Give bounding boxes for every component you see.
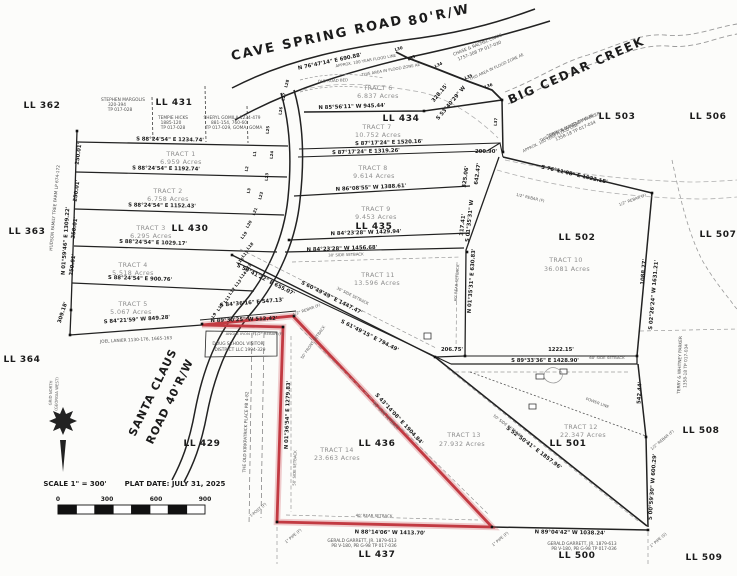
bearing-tract6-south: N 85°56'11" W 945.44' <box>318 103 386 111</box>
line-label-l22: L22 <box>257 191 264 200</box>
owner-garrett-east-2: PB V-180, PB G-98 TP 017-036 <box>551 546 616 552</box>
owner-school-2: DISTRICT LLC 1994-329 <box>214 347 265 353</box>
tract-14-acres: 23.663 Acres <box>314 455 360 462</box>
ll-502: LL 502 <box>559 233 596 243</box>
marker-rebar-4: 1/2" REBAR (F) <box>649 428 675 451</box>
owner-garrett-west-2: PB V-180, PB G-98 TP 017-036 <box>331 543 396 549</box>
line-label-l20: L20 <box>245 219 253 229</box>
tract-11-name: TRACT 11 <box>360 272 395 279</box>
setback-50-t14-west: 50' SIDE SETBACK <box>291 450 297 486</box>
dist-250-01-c: 250.01' <box>71 216 80 239</box>
tract4-tract5-line <box>72 283 254 291</box>
tract-2-name: TRACT 2 <box>152 188 182 195</box>
line-label-l27: L27 <box>280 92 286 101</box>
bearing-n8930: N 89°30'25" W 512.42' <box>210 316 278 324</box>
pond-outline <box>544 368 562 383</box>
tract-7-acres: 10.752 Acres <box>355 132 401 139</box>
owner-gomila-3: TP 017-029, GOMA, GOMA <box>205 125 263 131</box>
dist-328-15: 328.15' <box>431 83 450 104</box>
setback-tract11-top <box>292 257 460 262</box>
big-cedar-creek-name: BIG CEDAR CREEK <box>506 34 647 107</box>
bearing-t5-bottom: S 84°21'59" W 849.28' <box>104 315 171 326</box>
scale-bar <box>58 505 205 514</box>
owner-margolis-3: TP 017-028 <box>107 107 133 113</box>
ll-434: LL 434 <box>383 114 420 124</box>
corridor-206-line <box>435 356 465 357</box>
scale-text: SCALE 1" = 300' <box>43 480 106 488</box>
tract1-tract2-line <box>76 172 287 177</box>
plat-map: CAVE SPRING ROAD80'R/WBIG CEDAR CREEKSAN… <box>0 0 737 576</box>
ll-508: LL 508 <box>683 426 720 436</box>
line-label-l26: L26 <box>277 106 283 115</box>
note-old-road-bed: OLD ROAD BED <box>318 77 348 84</box>
ll-436: LL 436 <box>359 439 396 449</box>
bearing-t4-t5: S 88°24'54" E 900.76' <box>108 275 173 283</box>
setback-40-rear-t14: 40' REAR SETBACK <box>356 513 393 519</box>
ll-437: LL 437 <box>359 550 396 560</box>
note-flood-zone-top: THIS AREA IN FLOOD ZONE AE <box>360 62 421 77</box>
compass-text-2: (GEORGIA WEST) <box>53 377 59 411</box>
tract-1-acres: 6.959 Acres <box>160 159 202 166</box>
bearing-s0059: S 00°59'30" W 600.29' <box>648 453 659 520</box>
scale-tick-0: 0 <box>56 496 60 503</box>
line-label-l34: L34 <box>434 61 444 69</box>
tract-14-name: TRACT 14 <box>319 447 354 454</box>
tract-12-acres: 22.347 Acres <box>560 432 606 439</box>
owner-hudson: HUDSON FAMILY TREE FARM LP 674-172 <box>48 165 61 251</box>
ll-364: LL 364 <box>4 355 41 365</box>
tract-11-acres: 13.596 Acres <box>354 280 400 287</box>
old-kirkpatrick-place-road <box>249 333 264 525</box>
flood-line-right-a <box>505 160 737 182</box>
setback-30-t11-top: 30' SIDE SETBACK <box>328 251 364 257</box>
lot431-divider-2 <box>205 86 206 142</box>
dist-642-47: 642.47' <box>474 162 483 185</box>
dist-250-01-d: 250.01' <box>69 253 78 276</box>
cave-spring-road-rw: 80'R/W <box>407 2 472 30</box>
tract-9-acres: 9.453 Acres <box>355 214 397 221</box>
line-label-l3: L3 <box>246 187 252 193</box>
north-arrow-pointer <box>60 440 66 472</box>
lot431-divider-1 <box>152 97 153 141</box>
tract-8-name: TRACT 8 <box>357 165 387 172</box>
dist-1222-15: 1222.15' <box>548 347 574 353</box>
bearing-tract10-north: S 76°11'08" E 1022.18' <box>540 164 608 185</box>
tract5-south-line <box>70 325 202 335</box>
dist-325-06: 325.06' <box>462 165 471 188</box>
bearing-n0135: N 01°35'31" E 630.83' <box>467 248 478 313</box>
tract-6-name: TRACT 6 <box>362 85 392 92</box>
marker-angle-iron: ANGLE IRON (F) <box>226 331 257 336</box>
line-label-l36: L36 <box>484 82 493 89</box>
map-labels: CAVE SPRING ROAD80'R/WBIG CEDAR CREEKSAN… <box>4 2 737 563</box>
marker-rebar-3: 1/2" REBAR (F) <box>618 192 647 207</box>
ll-509: LL 509 <box>686 553 723 563</box>
line-label-l30: L30 <box>394 45 403 52</box>
scale-tick-900: 900 <box>199 496 212 503</box>
lot431-divider-3 <box>247 106 248 143</box>
dist-206-75: 206.75' <box>441 347 463 353</box>
tract-9-name: TRACT 9 <box>360 206 390 213</box>
note-flood-zone-creek: THIS AREA IN FLOOD ZONE AE <box>468 52 525 82</box>
tract-10-acres: 36.081 Acres <box>544 266 590 273</box>
setback-60-rear-t11: 60' REAR SETBACK <box>453 264 461 302</box>
marker-pipe-2: 1" PIPE (F) <box>491 530 510 547</box>
plat-document: CAVE SPRING ROAD80'R/WBIG CEDAR CREEKSAN… <box>0 0 737 576</box>
tract-12-name: TRACT 12 <box>563 424 598 431</box>
marker-rebar-1: 1/2" REBAR (F) <box>255 331 284 336</box>
line-label-l28: L28 <box>283 79 290 88</box>
dist-250-01-b: 250.01' <box>73 179 82 202</box>
ll-430: LL 430 <box>172 224 209 234</box>
bearing-t1-t2: S 88°24'54" E 1192.74' <box>132 165 200 172</box>
bearing-t1-top: S 88°24'54" E 1234.74' <box>136 136 204 143</box>
plat-date-text: PLAT DATE: JULY 31, 2025 <box>125 480 226 488</box>
line-label-l25: L25 <box>265 125 271 134</box>
ll-362: LL 362 <box>24 101 61 111</box>
line-label-l23: L23 <box>264 172 270 181</box>
bearing-tract14-west: N 01°36'54" E 1279.83' <box>284 380 292 449</box>
note-kirkpatrick: THE OLD KIRKPATRICK PLACE PB 4-82 <box>242 391 251 473</box>
line-label-l12: L12 <box>227 286 236 296</box>
dist-200-90: 200.90' <box>475 149 497 155</box>
marker-rebar-5: 1/2" REBAR (F) <box>516 192 546 204</box>
tract-5-name: TRACT 5 <box>117 301 147 308</box>
owner-school-1: DOUG SCHOOL VISITOR <box>212 341 263 347</box>
ll-429: LL 429 <box>184 439 221 449</box>
tract-4-name: TRACT 4 <box>117 262 147 269</box>
line-label-l1: L1 <box>252 151 257 157</box>
tract-6-acres: 6.837 Acres <box>357 93 399 100</box>
scale-tick-600: 600 <box>150 496 163 503</box>
dist-1088-77: 1088.77' <box>640 258 648 285</box>
marker-tpost: T-POST (F) <box>248 501 268 519</box>
ll-507: LL 507 <box>700 230 737 240</box>
bearing-t3-t4: S 88°24'54" E 1029.17' <box>119 239 187 247</box>
bearing-s0226: S 02°26'24" W 1631.21' <box>648 259 660 330</box>
dist-542-44: 542.44' <box>636 381 643 404</box>
marker-rebar-2: 1/2" REBAR (F) <box>292 302 321 317</box>
bearing-t7-south-b: S 87°17'24" E 1319.26' <box>332 148 400 156</box>
ll-501: LL 501 <box>550 439 587 449</box>
tract-3-name: TRACT 3 <box>135 225 165 232</box>
line-label-l18: L18 <box>245 241 254 251</box>
owner-hicks-3: TP 017-028 <box>160 125 186 131</box>
north-arrow <box>49 407 77 472</box>
line-label-l19: L19 <box>239 230 248 240</box>
tract-8-acres: 9.614 Acres <box>353 173 395 180</box>
ll-431: LL 431 <box>156 98 193 108</box>
line-label-l24: L24 <box>269 150 275 159</box>
bearing-s8933: S 89°33'36" E 1428.90' <box>511 358 579 364</box>
setback-60-t12: 60' SIDE SETBACK <box>589 355 625 360</box>
bearing-t2-t3: S 88°24'54" E 1152.43' <box>128 202 196 209</box>
line-label-l2: L2 <box>244 166 250 172</box>
scale-tick-300: 300 <box>101 496 114 503</box>
compass-text-1: GRID NORTH <box>48 380 54 405</box>
line-label-l37: L37 <box>493 117 499 126</box>
tract-7-name: TRACT 7 <box>361 124 391 131</box>
tract6-east-line <box>502 100 503 152</box>
dist-309-18: 309.18' <box>57 301 70 324</box>
bearing-tract14-south: N 88°14'06" W 1413.70' <box>355 529 426 536</box>
ll-506: LL 506 <box>690 112 727 122</box>
ll-363: LL 363 <box>9 227 46 237</box>
ll-503: LL 503 <box>599 112 636 122</box>
tract-10-name: TRACT 10 <box>548 257 583 264</box>
tract-13-name: TRACT 13 <box>446 432 481 439</box>
bearing-bottom-east: N 89°04'42" W 1038.24' <box>535 529 606 536</box>
ll-500: LL 500 <box>559 551 596 561</box>
tract-13-acres: 27.932 Acres <box>439 441 485 448</box>
marker-pipe-1: 1" PIPE (F) <box>284 527 303 544</box>
note-power-line: POWER LINE <box>585 396 610 409</box>
tract-1-name: TRACT 1 <box>165 151 195 158</box>
owner-lanier: JOEL LANIER 1130-176, 1665-163 <box>99 335 173 345</box>
tract-5-acres: 5.067 Acres <box>110 309 152 316</box>
marker-pipe-3: 1" PIPE (S) <box>649 531 668 548</box>
